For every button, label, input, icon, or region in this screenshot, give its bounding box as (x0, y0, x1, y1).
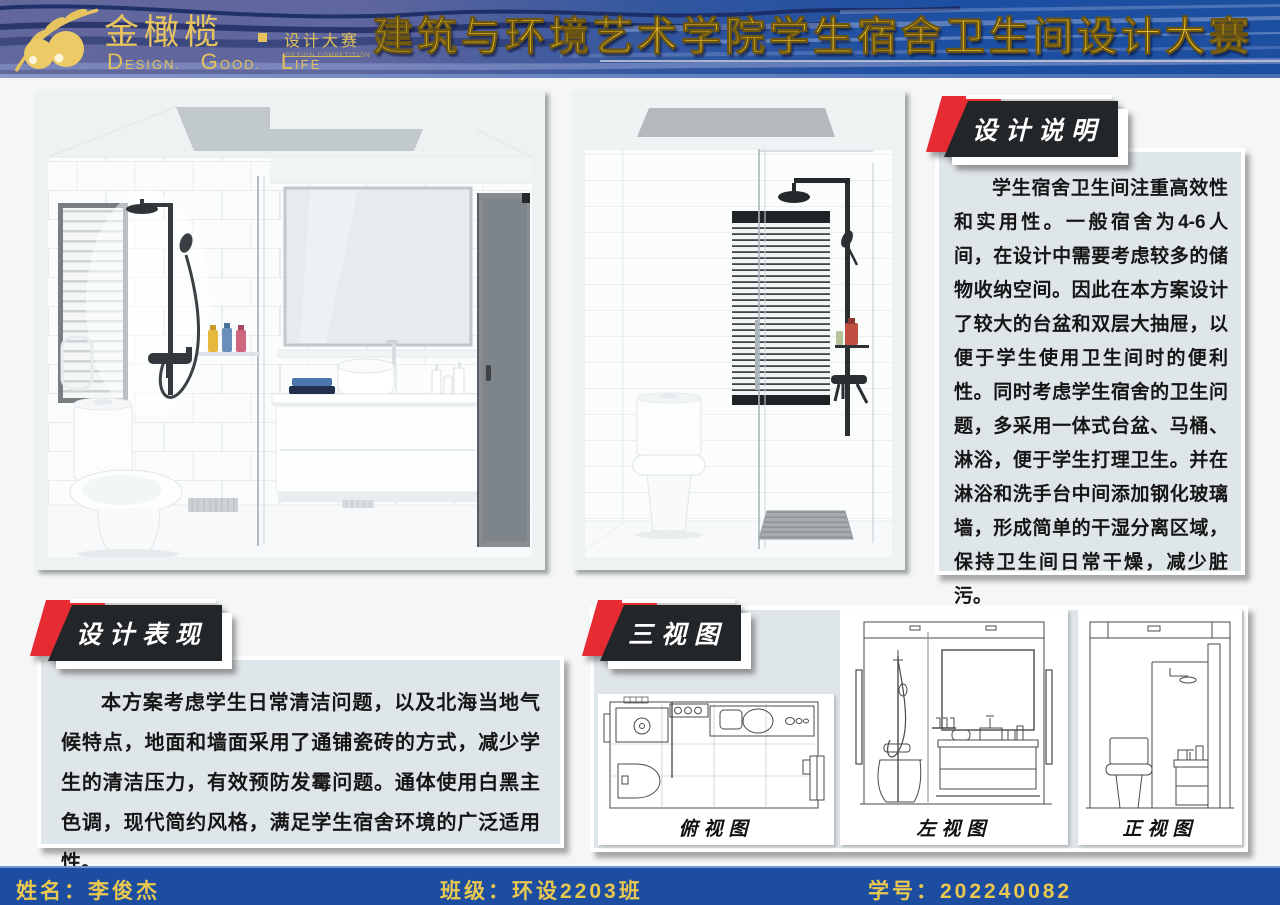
top-view-drawing (598, 696, 834, 816)
three-views-label: 三视图 (598, 605, 741, 661)
footer-bar: 姓名：李俊杰 班级：环设2203班 学号：202240082 (0, 866, 1280, 905)
design-notes-panel: 学生宿舍卫生间注重高效性和实用性。一般宿舍为4-6人间，在设计中需要考虑较多的储… (935, 148, 1245, 575)
header-bottom-strip (0, 74, 1280, 78)
design-notes-label-text: 设计说明 (942, 101, 1118, 157)
design-notes-text: 学生宿舍卫生间注重高效性和实用性。一般宿舍为4-6人间，在设计中需要考虑较多的储… (939, 152, 1241, 614)
label-top-line (966, 95, 1112, 99)
tagline-word: Good. (201, 49, 261, 75)
label-top-line (622, 599, 735, 603)
student-id: 学号：202240082 (868, 875, 1072, 905)
bathroom-render-wide (35, 90, 545, 570)
competition-title: 建筑与环境艺术学院学生宿舍卫生间设计大赛 (360, 11, 1266, 63)
design-expression-label-text: 设计表现 (46, 605, 222, 661)
tagline-word: Design. (107, 49, 181, 75)
left-view-drawing (840, 612, 1068, 812)
design-expression-panel: 本方案考虑学生日常清洁问题，以及北海当地气候特点，地面和墙面采用了通铺瓷砖的方式… (37, 656, 564, 848)
front-view-caption: 正视图 (1078, 814, 1242, 841)
brand-dot-decoration (258, 33, 267, 42)
design-expression-label: 设计表现 (46, 605, 222, 661)
left-view-card: 左视图 (840, 610, 1068, 845)
student-class: 班级：环设2203班 (440, 875, 643, 905)
top-view-card: 俯视图 (598, 694, 834, 845)
left-view-caption: 左视图 (840, 814, 1068, 841)
front-view-card: 正视图 (1078, 610, 1242, 845)
bathroom-render-wide-image (48, 103, 532, 557)
brand-name: 金橄榄 (104, 16, 224, 51)
header-banner: 金橄榄 设计大赛 DESIGN COMPETITION Design. Good… (0, 0, 1280, 78)
bathroom-render-narrow-image (585, 103, 892, 557)
brand-tagline: Design. Good. Life (107, 49, 335, 75)
student-name: 姓名：李俊杰 (16, 875, 160, 905)
competition-poster: 金橄榄 设计大赛 DESIGN COMPETITION Design. Good… (0, 0, 1280, 905)
golden-olive-logo-icon (8, 5, 104, 73)
design-notes-label: 设计说明 (942, 101, 1118, 157)
tagline-word: Life (281, 49, 322, 75)
top-view-caption: 俯视图 (598, 814, 834, 841)
label-top-line (70, 599, 216, 603)
bathroom-render-narrow (572, 90, 905, 570)
design-expression-text: 本方案考虑学生日常清洁问题，以及北海当地气候特点，地面和墙面采用了通铺瓷砖的方式… (41, 660, 560, 883)
title-underline-decoration (600, 60, 1280, 62)
front-view-drawing (1078, 612, 1242, 812)
